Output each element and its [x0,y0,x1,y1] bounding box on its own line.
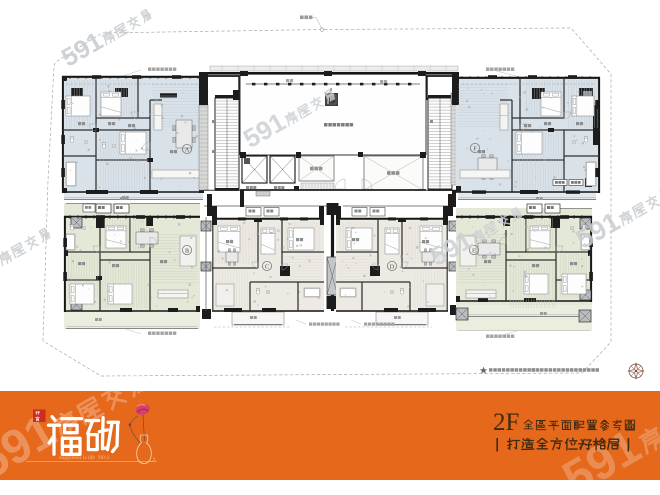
svg-text:NO.3: NO.3 [98,455,110,461]
svg-text:2F: 2F [493,409,519,436]
svg-text:happiness is life: happiness is life [59,454,96,461]
